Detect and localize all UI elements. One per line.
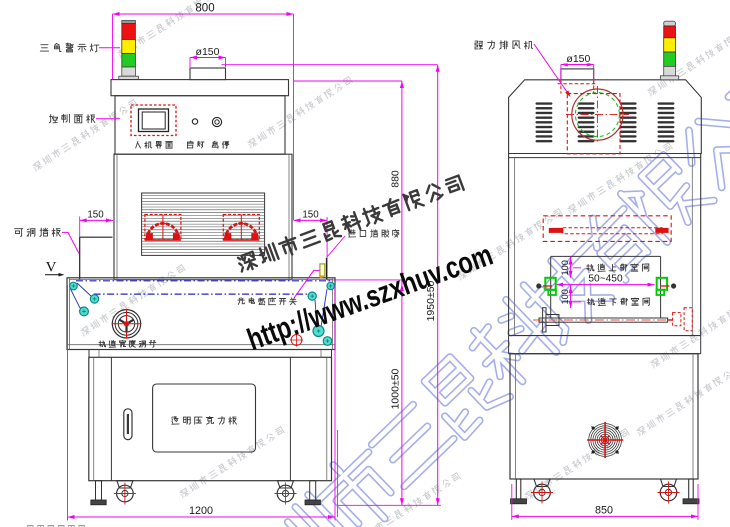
svg-text:100: 100 <box>560 289 570 304</box>
svg-text:1200: 1200 <box>189 505 213 517</box>
svg-text:ø150: ø150 <box>196 46 220 58</box>
svg-text:V: V <box>46 260 57 276</box>
svg-text:150: 150 <box>87 210 104 221</box>
svg-text:50~450: 50~450 <box>588 274 623 285</box>
svg-text:100: 100 <box>560 260 570 275</box>
svg-text:150: 150 <box>302 210 319 221</box>
svg-text:ø150: ø150 <box>566 53 590 65</box>
svg-text:800: 800 <box>195 3 214 15</box>
svg-text:850: 850 <box>595 505 613 517</box>
svg-text:880: 880 <box>389 170 401 188</box>
svg-text:1000±50: 1000±50 <box>390 368 402 409</box>
